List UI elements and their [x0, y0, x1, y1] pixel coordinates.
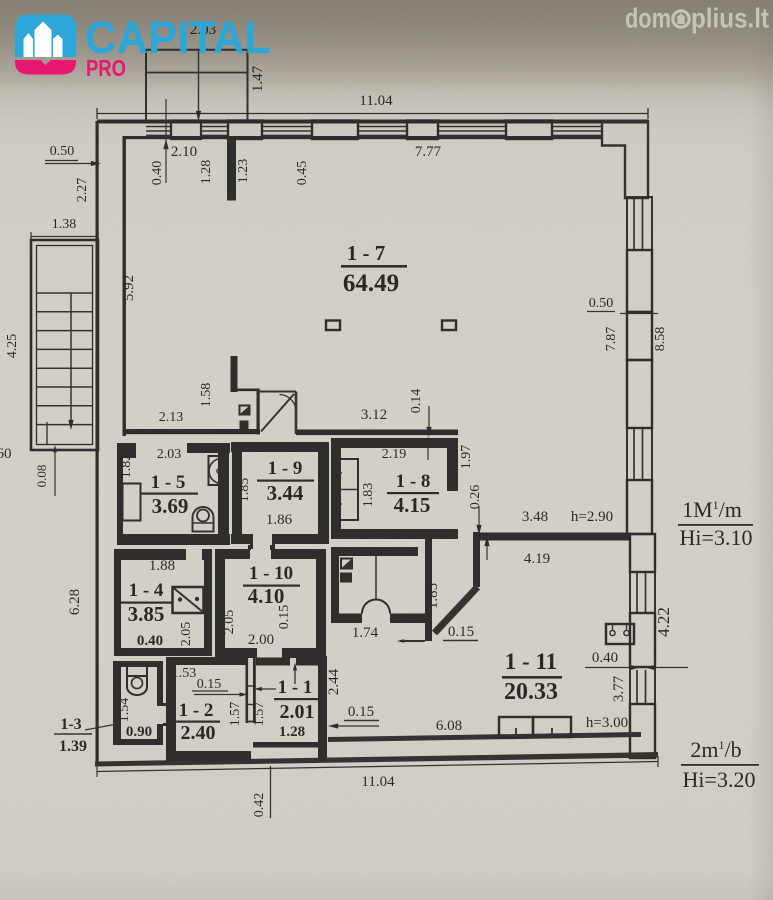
svg-text:0.15: 0.15: [348, 704, 374, 720]
svg-text:0.40: 0.40: [150, 161, 165, 186]
svg-text:1.85: 1.85: [237, 478, 252, 503]
svg-text:0.42: 0.42: [252, 793, 267, 818]
svg-text:h=2.90: h=2.90: [571, 509, 613, 525]
svg-text:3.77: 3.77: [611, 675, 627, 702]
svg-text:1 - 4: 1 - 4: [129, 580, 164, 601]
svg-text:4.25: 4.25: [5, 334, 20, 359]
svg-text:2.01: 2.01: [280, 701, 315, 723]
svg-text:2.27: 2.27: [75, 178, 90, 203]
svg-text:1.74: 1.74: [352, 625, 379, 641]
svg-text:1.58: 1.58: [199, 383, 214, 408]
svg-text:1 - 10: 1 - 10: [249, 563, 293, 584]
svg-text:1.97: 1.97: [459, 445, 474, 470]
svg-text:0.90: 0.90: [126, 724, 152, 740]
svg-text:4.19: 4.19: [524, 551, 550, 567]
svg-text:11.04: 11.04: [361, 774, 395, 790]
svg-text:5.92: 5.92: [121, 275, 137, 301]
svg-text:1 - 7: 1 - 7: [347, 241, 386, 265]
svg-text:0.08: 0.08: [34, 465, 49, 488]
svg-text:2.13: 2.13: [159, 410, 184, 425]
svg-text:0.26: 0.26: [468, 485, 483, 510]
svg-text:2.19: 2.19: [382, 447, 407, 462]
svg-text:2.10: 2.10: [171, 144, 197, 160]
svg-text:1.47: 1.47: [250, 65, 266, 92]
svg-text:0.50: 0.50: [50, 144, 75, 159]
svg-text:1.83: 1.83: [361, 483, 376, 508]
svg-text:Hi=3.20: Hi=3.20: [683, 767, 756, 792]
svg-text:2.05: 2.05: [222, 610, 237, 635]
svg-text:1 - 8: 1 - 8: [396, 471, 431, 492]
svg-text:3.69: 3.69: [152, 494, 189, 518]
svg-text:1 - 5: 1 - 5: [151, 472, 186, 493]
svg-text:6.28: 6.28: [67, 589, 83, 615]
svg-text:1.57: 1.57: [252, 702, 267, 727]
svg-text:7.77: 7.77: [415, 144, 442, 160]
svg-text:1.57: 1.57: [228, 702, 243, 727]
svg-text:1.28: 1.28: [199, 160, 214, 185]
svg-text:0.40: 0.40: [592, 650, 618, 666]
svg-text:PRO: PRO: [86, 55, 126, 81]
svg-text:2.03: 2.03: [157, 447, 182, 462]
svg-text:1-3: 1-3: [60, 716, 81, 733]
svg-text:3.12: 3.12: [361, 407, 387, 423]
svg-text:h=3.00: h=3.00: [586, 715, 628, 731]
svg-text:4.10: 4.10: [248, 584, 285, 608]
svg-text:0.50: 0.50: [589, 296, 614, 311]
svg-text:4.22: 4.22: [654, 607, 673, 637]
svg-text:4.15: 4.15: [394, 493, 431, 517]
svg-text:2.05: 2.05: [179, 622, 194, 647]
svg-text:0.15: 0.15: [448, 624, 474, 640]
svg-text:0.15: 0.15: [197, 677, 222, 692]
svg-text:2.40: 2.40: [181, 722, 216, 744]
svg-text:8.58: 8.58: [653, 327, 668, 352]
svg-text:0.14: 0.14: [409, 389, 424, 414]
svg-text:1.38: 1.38: [52, 217, 77, 232]
svg-text:0.40: 0.40: [137, 633, 163, 649]
svg-text:2m1/b: 2m1/b: [690, 737, 741, 762]
svg-text:1.82: 1.82: [119, 454, 134, 479]
svg-text:7.87: 7.87: [604, 327, 619, 352]
svg-text:dom: dom: [625, 3, 671, 34]
svg-text:1 - 1: 1 - 1: [278, 677, 313, 698]
svg-text:11.04: 11.04: [359, 93, 393, 109]
svg-text:1.39: 1.39: [59, 738, 87, 755]
svg-text:1.53: 1.53: [172, 666, 197, 681]
svg-text:2.00: 2.00: [248, 632, 274, 648]
svg-text:1 - 2: 1 - 2: [179, 700, 214, 721]
svg-text:6.08: 6.08: [436, 718, 462, 734]
svg-text:3.85: 3.85: [128, 602, 165, 626]
svg-text:Hi=3.10: Hi=3.10: [680, 525, 753, 550]
svg-text:3.44: 3.44: [267, 481, 304, 505]
svg-text:1.28: 1.28: [279, 724, 305, 740]
svg-text:1 - 11: 1 - 11: [505, 649, 557, 674]
svg-text:1.85: 1.85: [425, 583, 441, 609]
svg-text:64.49: 64.49: [343, 270, 399, 297]
svg-text:1.88: 1.88: [149, 558, 175, 574]
svg-text:1 - 9: 1 - 9: [268, 458, 303, 479]
svg-text:20.33: 20.33: [504, 679, 558, 705]
svg-text:1.86: 1.86: [266, 512, 293, 528]
svg-text:1.23: 1.23: [236, 159, 251, 184]
svg-text:2.44: 2.44: [326, 668, 342, 695]
svg-text:0.45: 0.45: [295, 161, 310, 186]
svg-text:1.54: 1.54: [117, 698, 132, 723]
svg-text:0.15: 0.15: [277, 605, 292, 630]
svg-text:60: 60: [0, 446, 12, 462]
svg-text:plius.lt: plius.lt: [691, 3, 769, 34]
svg-text:1M1/m: 1M1/m: [682, 497, 742, 522]
svg-text:3.48: 3.48: [522, 509, 548, 525]
